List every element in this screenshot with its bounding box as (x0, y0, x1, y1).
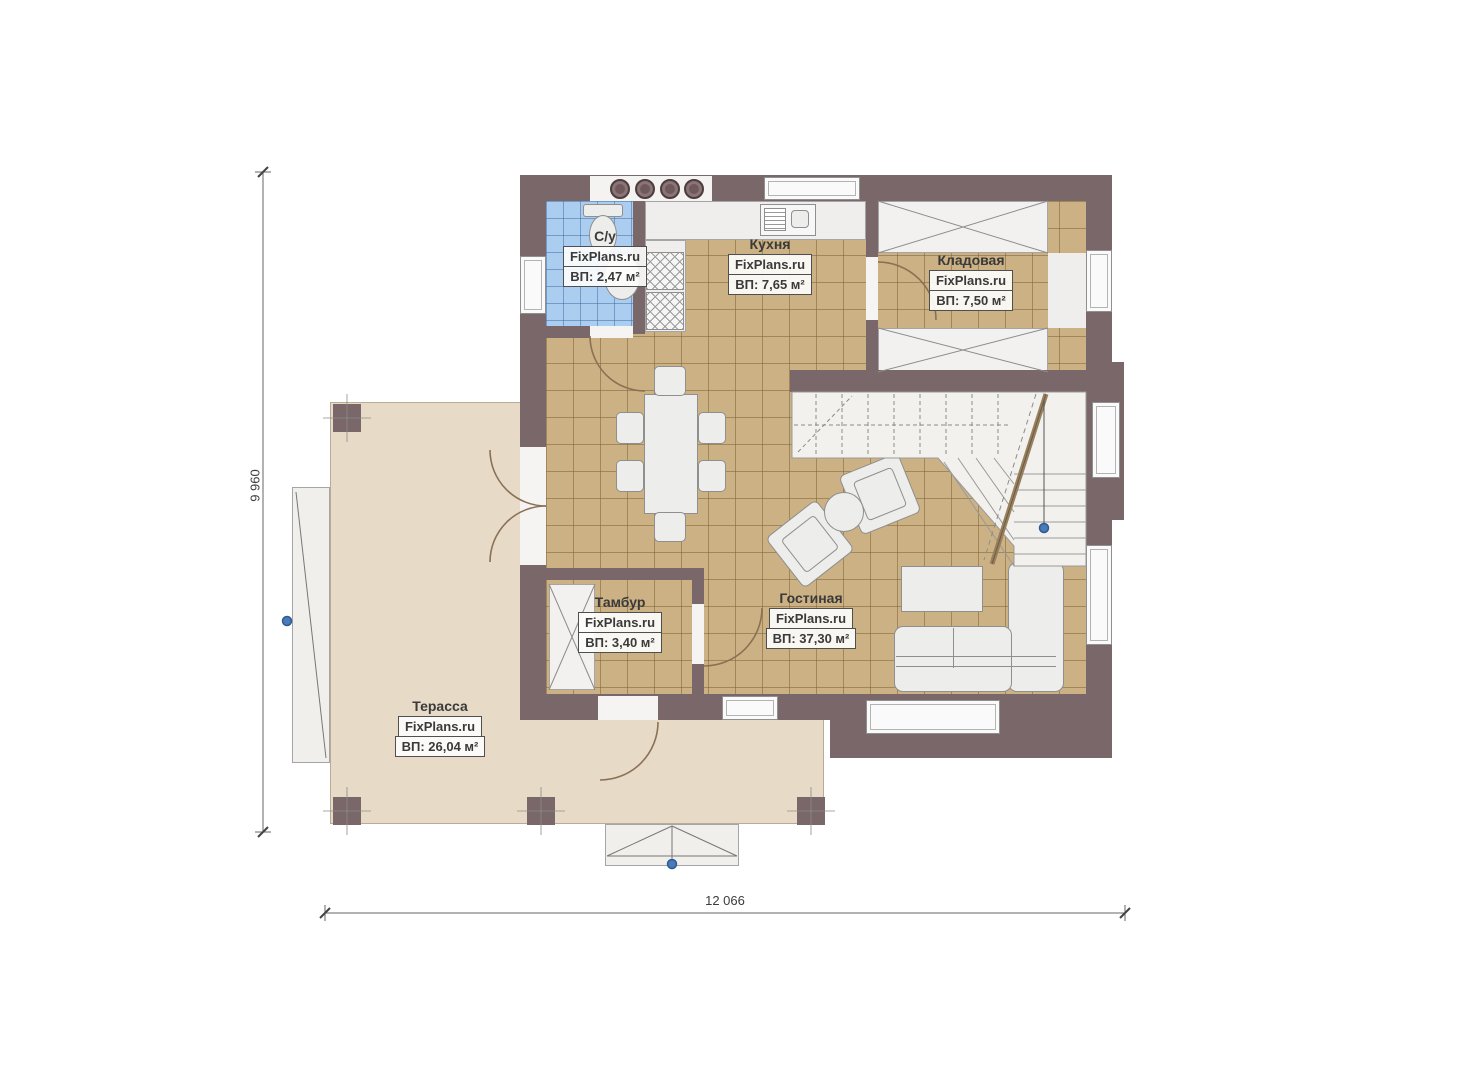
wall-under-storage (790, 370, 1086, 392)
vestibule-door-opening (692, 604, 704, 664)
terrace-post (527, 797, 555, 825)
terrace-post (797, 797, 825, 825)
watermark: FixPlans.ru (728, 254, 812, 275)
storage-door-opening (866, 257, 878, 320)
window-kitchen-top (764, 177, 860, 200)
sofa-seam (896, 656, 1056, 657)
wall-kitchen-storage-top (866, 201, 878, 257)
wall-vestibule-right-lower (692, 664, 704, 694)
dining-chair (698, 460, 726, 492)
sofa-seam (896, 666, 1056, 667)
dining-table (644, 394, 698, 514)
room-area: ВП: 7,65 м² (728, 274, 812, 295)
room-label-terrace: Терасса FixPlans.ru ВП: 26,04 м² (384, 698, 496, 757)
dishwasher (646, 292, 684, 330)
dining-chair (654, 366, 686, 396)
stove-burner (684, 179, 704, 199)
watermark: FixPlans.ru (769, 608, 853, 629)
stove-burner (610, 179, 630, 199)
dimension-width-label: 12 066 (685, 893, 765, 908)
window-storage-right (1086, 250, 1112, 312)
window-bathroom-left (520, 256, 546, 314)
storage-shelf-top (878, 201, 1048, 253)
window-stairs-right (1092, 402, 1120, 478)
entrance-door-opening (598, 696, 658, 720)
room-label-kitchen: Кухня FixPlans.ru ВП: 7,65 м² (712, 236, 828, 295)
room-name: Тамбур (595, 594, 646, 610)
watermark: FixPlans.ru (563, 246, 647, 267)
terrace-door-opening (520, 447, 546, 565)
room-area: ВП: 26,04 м² (395, 736, 486, 757)
room-name: Гостиная (779, 590, 842, 606)
room-label-vestibule: Тамбур FixPlans.ru ВП: 3,40 м² (570, 594, 670, 653)
window-living-right (1086, 545, 1112, 645)
wall-bottom (520, 694, 850, 720)
watermark: FixPlans.ru (578, 612, 662, 633)
sofa-seam (953, 628, 954, 668)
sofa-chaise (1008, 562, 1064, 692)
storage-side-strip (1048, 253, 1086, 328)
side-table-round (824, 492, 864, 532)
terrace-post (333, 797, 361, 825)
terrace-post (333, 404, 361, 432)
dining-chair (616, 412, 644, 444)
floor-plan-canvas: С/у FixPlans.ru ВП: 2,47 м² Кухня FixPla… (0, 0, 1474, 1080)
dining-chair (654, 512, 686, 542)
room-name: Кухня (750, 236, 791, 252)
terrace-ramp (292, 487, 330, 763)
storage-shelf-bottom (878, 328, 1048, 372)
room-name: Кладовая (937, 252, 1004, 268)
kitchen-sink-drainer (764, 208, 786, 231)
room-name: Терасса (412, 698, 468, 714)
stove-burner (635, 179, 655, 199)
watermark: FixPlans.ru (398, 716, 482, 737)
dimension-height-label: 9 960 (248, 456, 263, 516)
room-area: ВП: 2,47 м² (563, 266, 647, 287)
coffee-table (901, 566, 983, 612)
bathroom-door-opening (590, 326, 633, 338)
dining-chair (616, 460, 644, 492)
wall-kitchen-storage-bottom (866, 320, 878, 372)
dining-chair (698, 412, 726, 444)
kitchen-sink-bowl (791, 210, 809, 228)
entrance-steps (605, 824, 739, 866)
room-area: ВП: 3,40 м² (578, 632, 662, 653)
window-bay-bottom (866, 700, 1000, 734)
room-area: ВП: 7,50 м² (929, 290, 1013, 311)
room-area: ВП: 37,30 м² (766, 628, 857, 649)
kitchen-counter (645, 201, 866, 240)
stove-burner (660, 179, 680, 199)
window-living-bottom (722, 696, 778, 720)
room-label-storage: Кладовая FixPlans.ru ВП: 7,50 м² (916, 252, 1026, 311)
wall-vestibule-top (546, 568, 704, 580)
wall-vestibule-right-upper (692, 580, 704, 604)
room-label-bathroom: С/у FixPlans.ru ВП: 2,47 м² (555, 228, 655, 287)
wall-bathroom-bottom (546, 326, 590, 338)
room-name: С/у (594, 228, 616, 244)
watermark: FixPlans.ru (929, 270, 1013, 291)
room-label-living: Гостиная FixPlans.ru ВП: 37,30 м² (758, 590, 864, 649)
